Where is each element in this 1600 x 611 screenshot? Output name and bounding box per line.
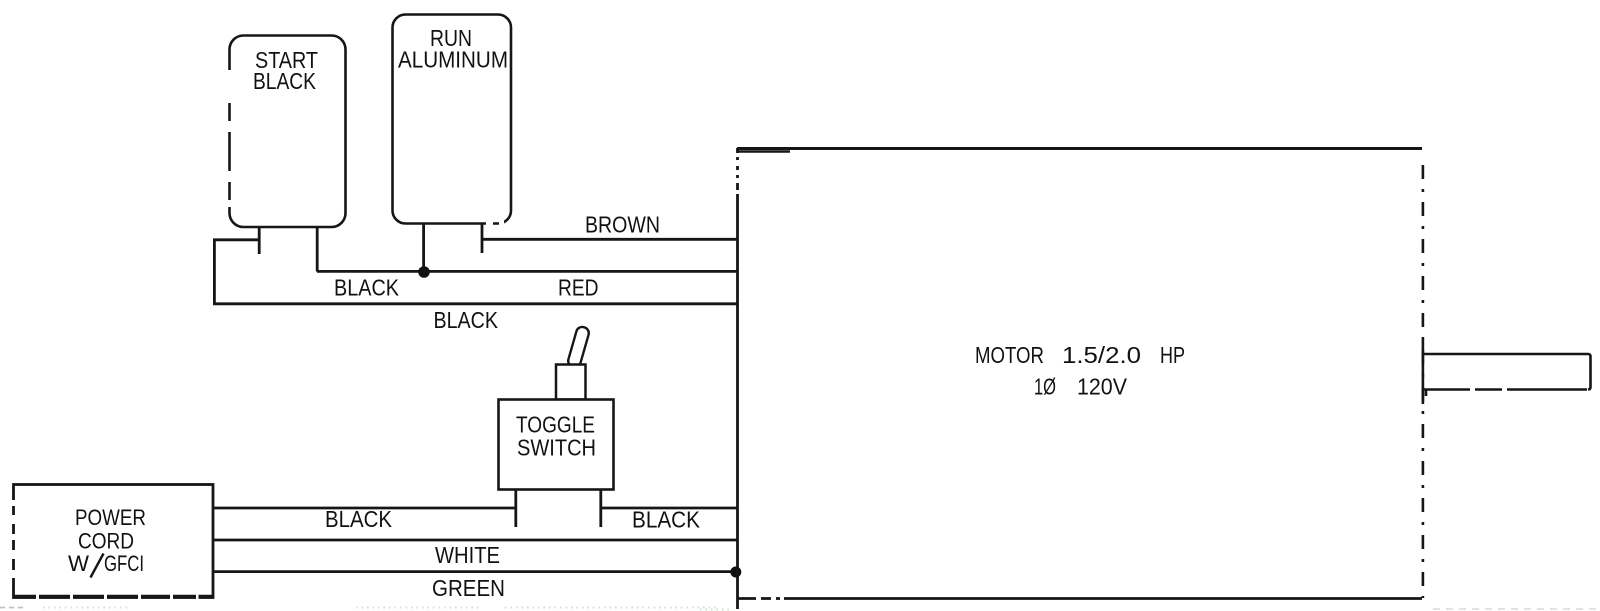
svg-text:1Ø: 1Ø [1034,374,1056,400]
svg-text:SWITCH: SWITCH [517,435,596,461]
svg-text:BLACK: BLACK [253,68,316,94]
svg-text:W: W [68,551,90,576]
svg-text:POWER: POWER [75,505,146,530]
svg-text:GREEN: GREEN [432,575,505,601]
svg-text:1.5/2.0: 1.5/2.0 [1062,342,1141,368]
svg-text:WHITE: WHITE [435,542,500,568]
svg-text:GFCI: GFCI [104,551,144,576]
svg-text:BROWN: BROWN [585,211,660,237]
svg-text:BLACK: BLACK [434,307,499,333]
svg-text:ALUMINUM: ALUMINUM [398,47,508,73]
svg-text:BLACK: BLACK [334,274,399,300]
svg-text:BLACK: BLACK [632,506,700,532]
svg-text:MOTOR: MOTOR [975,342,1044,368]
svg-text:BLACK: BLACK [325,506,392,532]
svg-text:120V: 120V [1077,374,1127,400]
svg-text:HP: HP [1160,342,1185,368]
svg-text:RED: RED [558,274,599,300]
